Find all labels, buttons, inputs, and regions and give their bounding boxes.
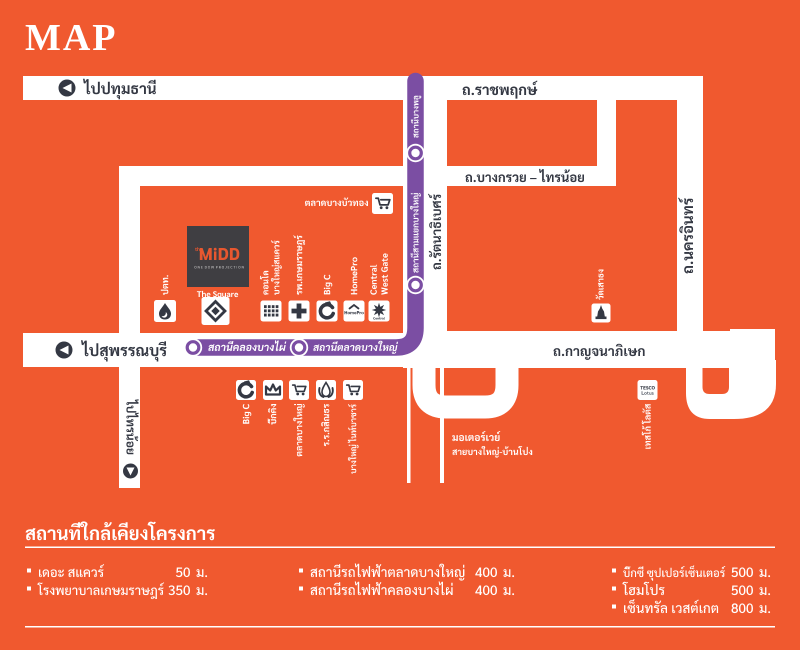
svg-text:MAP: MAP [25, 17, 118, 59]
